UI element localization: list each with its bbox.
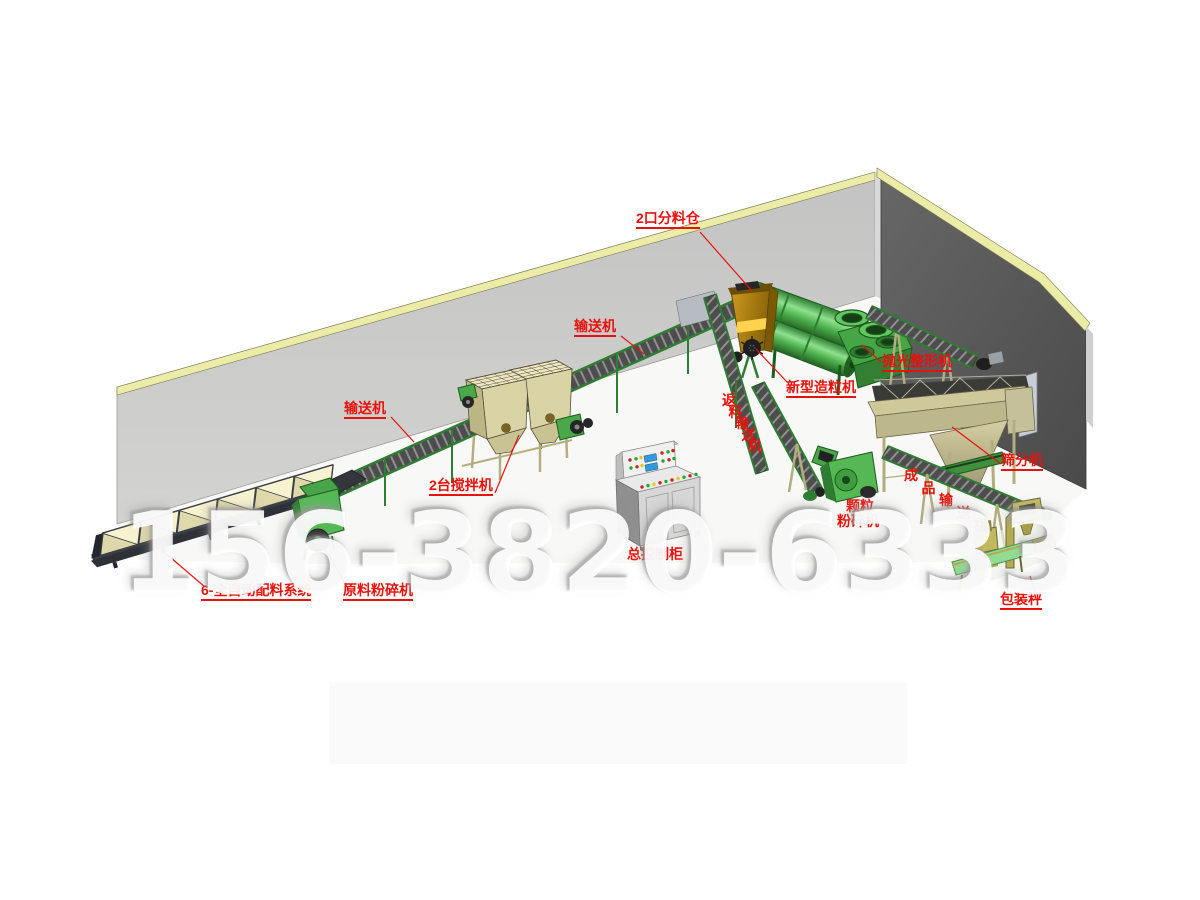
label-granulator: 新型造粒机	[786, 380, 856, 398]
plant-3d-scene	[0, 0, 1200, 900]
label-batching-system: 6-全自动配料系统	[201, 583, 311, 601]
label-packing-scale: 包装秤	[1000, 592, 1042, 610]
label-screener: 筛分机	[1001, 453, 1043, 471]
label-granule-crusher-line1: 颗粒	[846, 499, 874, 513]
label-conveyor-lower: 输送机	[344, 401, 386, 419]
label-conveyor-upper: 输送机	[574, 319, 616, 337]
label-control-cabinet: 总控制柜	[627, 547, 683, 561]
fertilizer-line-diagram: 2口分料仓 输送机 输送机 2台搅拌机 新型造粒机 抛光整形机 筛分机 总控制柜…	[0, 0, 1200, 900]
label-granule-crusher-line2: 粉碎机	[837, 514, 879, 528]
label-distribution-bin: 2口分料仓	[636, 211, 700, 229]
label-mixers: 2台搅拌机	[429, 478, 493, 496]
label-raw-crusher: 原料粉碎机	[343, 583, 413, 601]
label-polisher: 抛光整形机	[882, 354, 952, 372]
